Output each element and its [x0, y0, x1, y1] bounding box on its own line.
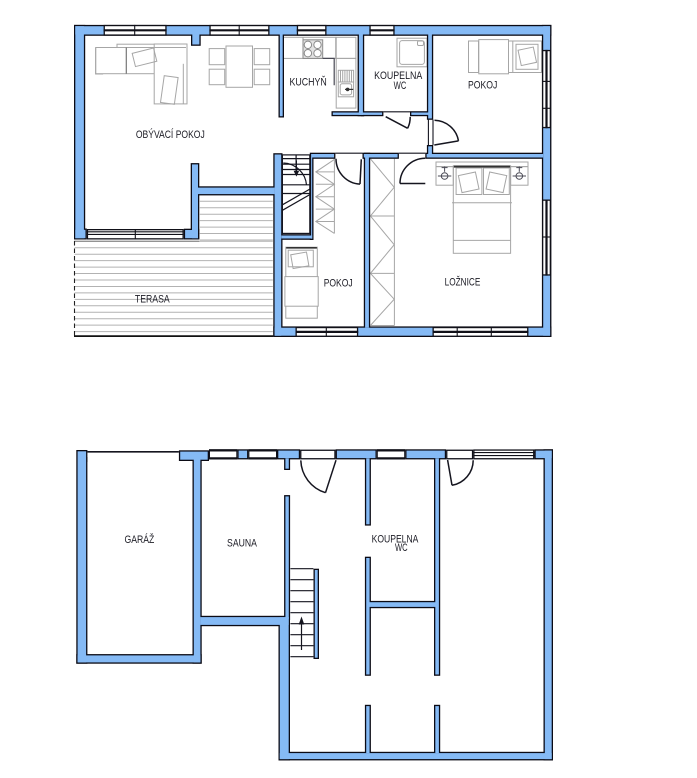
svg-text:KUCHYŇ: KUCHYŇ [289, 75, 326, 88]
svg-text:WC: WC [394, 80, 407, 92]
svg-text:TERASA: TERASA [135, 294, 170, 306]
svg-text:WC: WC [395, 542, 408, 554]
svg-text:POKOJ: POKOJ [468, 80, 497, 92]
svg-text:SAUNA: SAUNA [227, 537, 257, 549]
svg-text:LOŽNICE: LOŽNICE [445, 275, 481, 288]
svg-text:OBÝVACÍ POKOJ: OBÝVACÍ POKOJ [136, 128, 205, 141]
svg-text:GARÁŽ: GARÁŽ [125, 533, 155, 546]
svg-text:POKOJ: POKOJ [324, 278, 353, 290]
